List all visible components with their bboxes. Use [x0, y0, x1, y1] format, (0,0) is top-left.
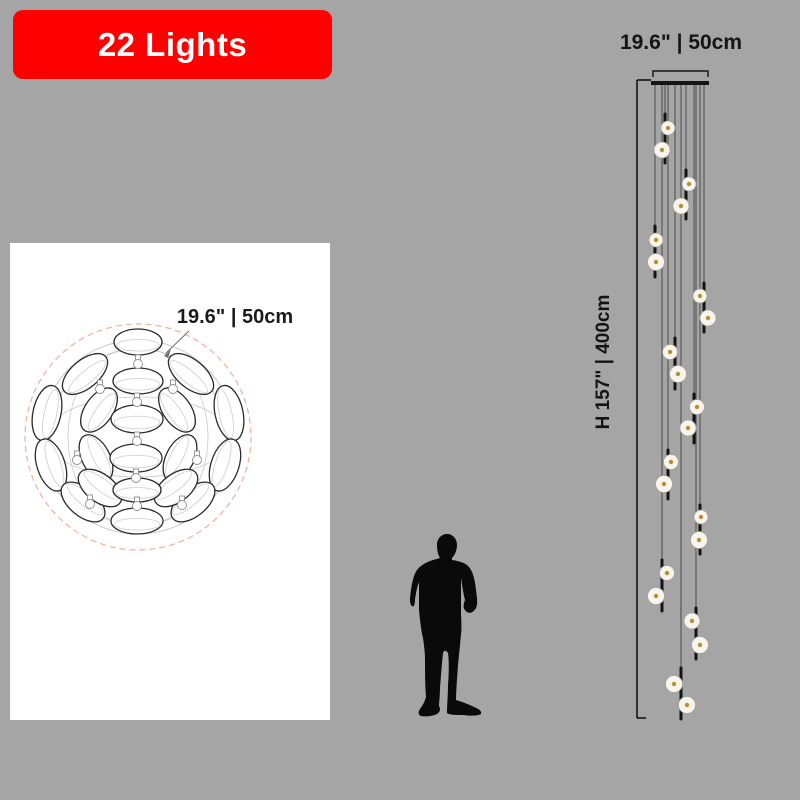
lamp-disc-center-dot	[690, 619, 694, 623]
lamp-disc-center-dot	[662, 482, 666, 486]
lamp-disc-center-dot	[654, 238, 658, 242]
lamp-disc-center-dot	[654, 594, 658, 598]
lamp-disc-center-dot	[668, 350, 672, 354]
lamp-disc-center-dot	[679, 204, 683, 208]
lamp-disc-center-dot	[698, 643, 702, 647]
lamp-disc-center-dot	[685, 703, 689, 707]
pendant-fixture-drawing	[637, 71, 716, 719]
lamp-disc-center-dot	[695, 405, 699, 409]
lamp-disc-center-dot	[706, 316, 710, 320]
lamp-disc-center-dot	[699, 515, 703, 519]
lamp-disc-center-dot	[686, 426, 690, 430]
lamp-disc-center-dot	[676, 372, 680, 376]
lamp-disc-center-dot	[660, 148, 664, 152]
lamp-disc-center-dot	[698, 294, 702, 298]
lamp-disc-center-dot	[672, 682, 676, 686]
lamp-disc-center-dot	[654, 260, 658, 264]
fixture-width-label: 19.6" | 50cm	[601, 31, 761, 55]
lamp-disc-center-dot	[669, 460, 673, 464]
person-silhouette	[410, 534, 481, 716]
fixture-height-label: H 157" | 400cm	[592, 282, 616, 442]
lamp-disc-center-dot	[666, 126, 670, 130]
ceiling-canopy-bar	[651, 81, 709, 85]
lamp-disc-center-dot	[697, 538, 701, 542]
lamp-disc-center-dot	[687, 182, 691, 186]
scale-scene	[0, 0, 800, 800]
width-dimension-bracket	[653, 71, 708, 77]
lamp-disc-center-dot	[665, 571, 669, 575]
